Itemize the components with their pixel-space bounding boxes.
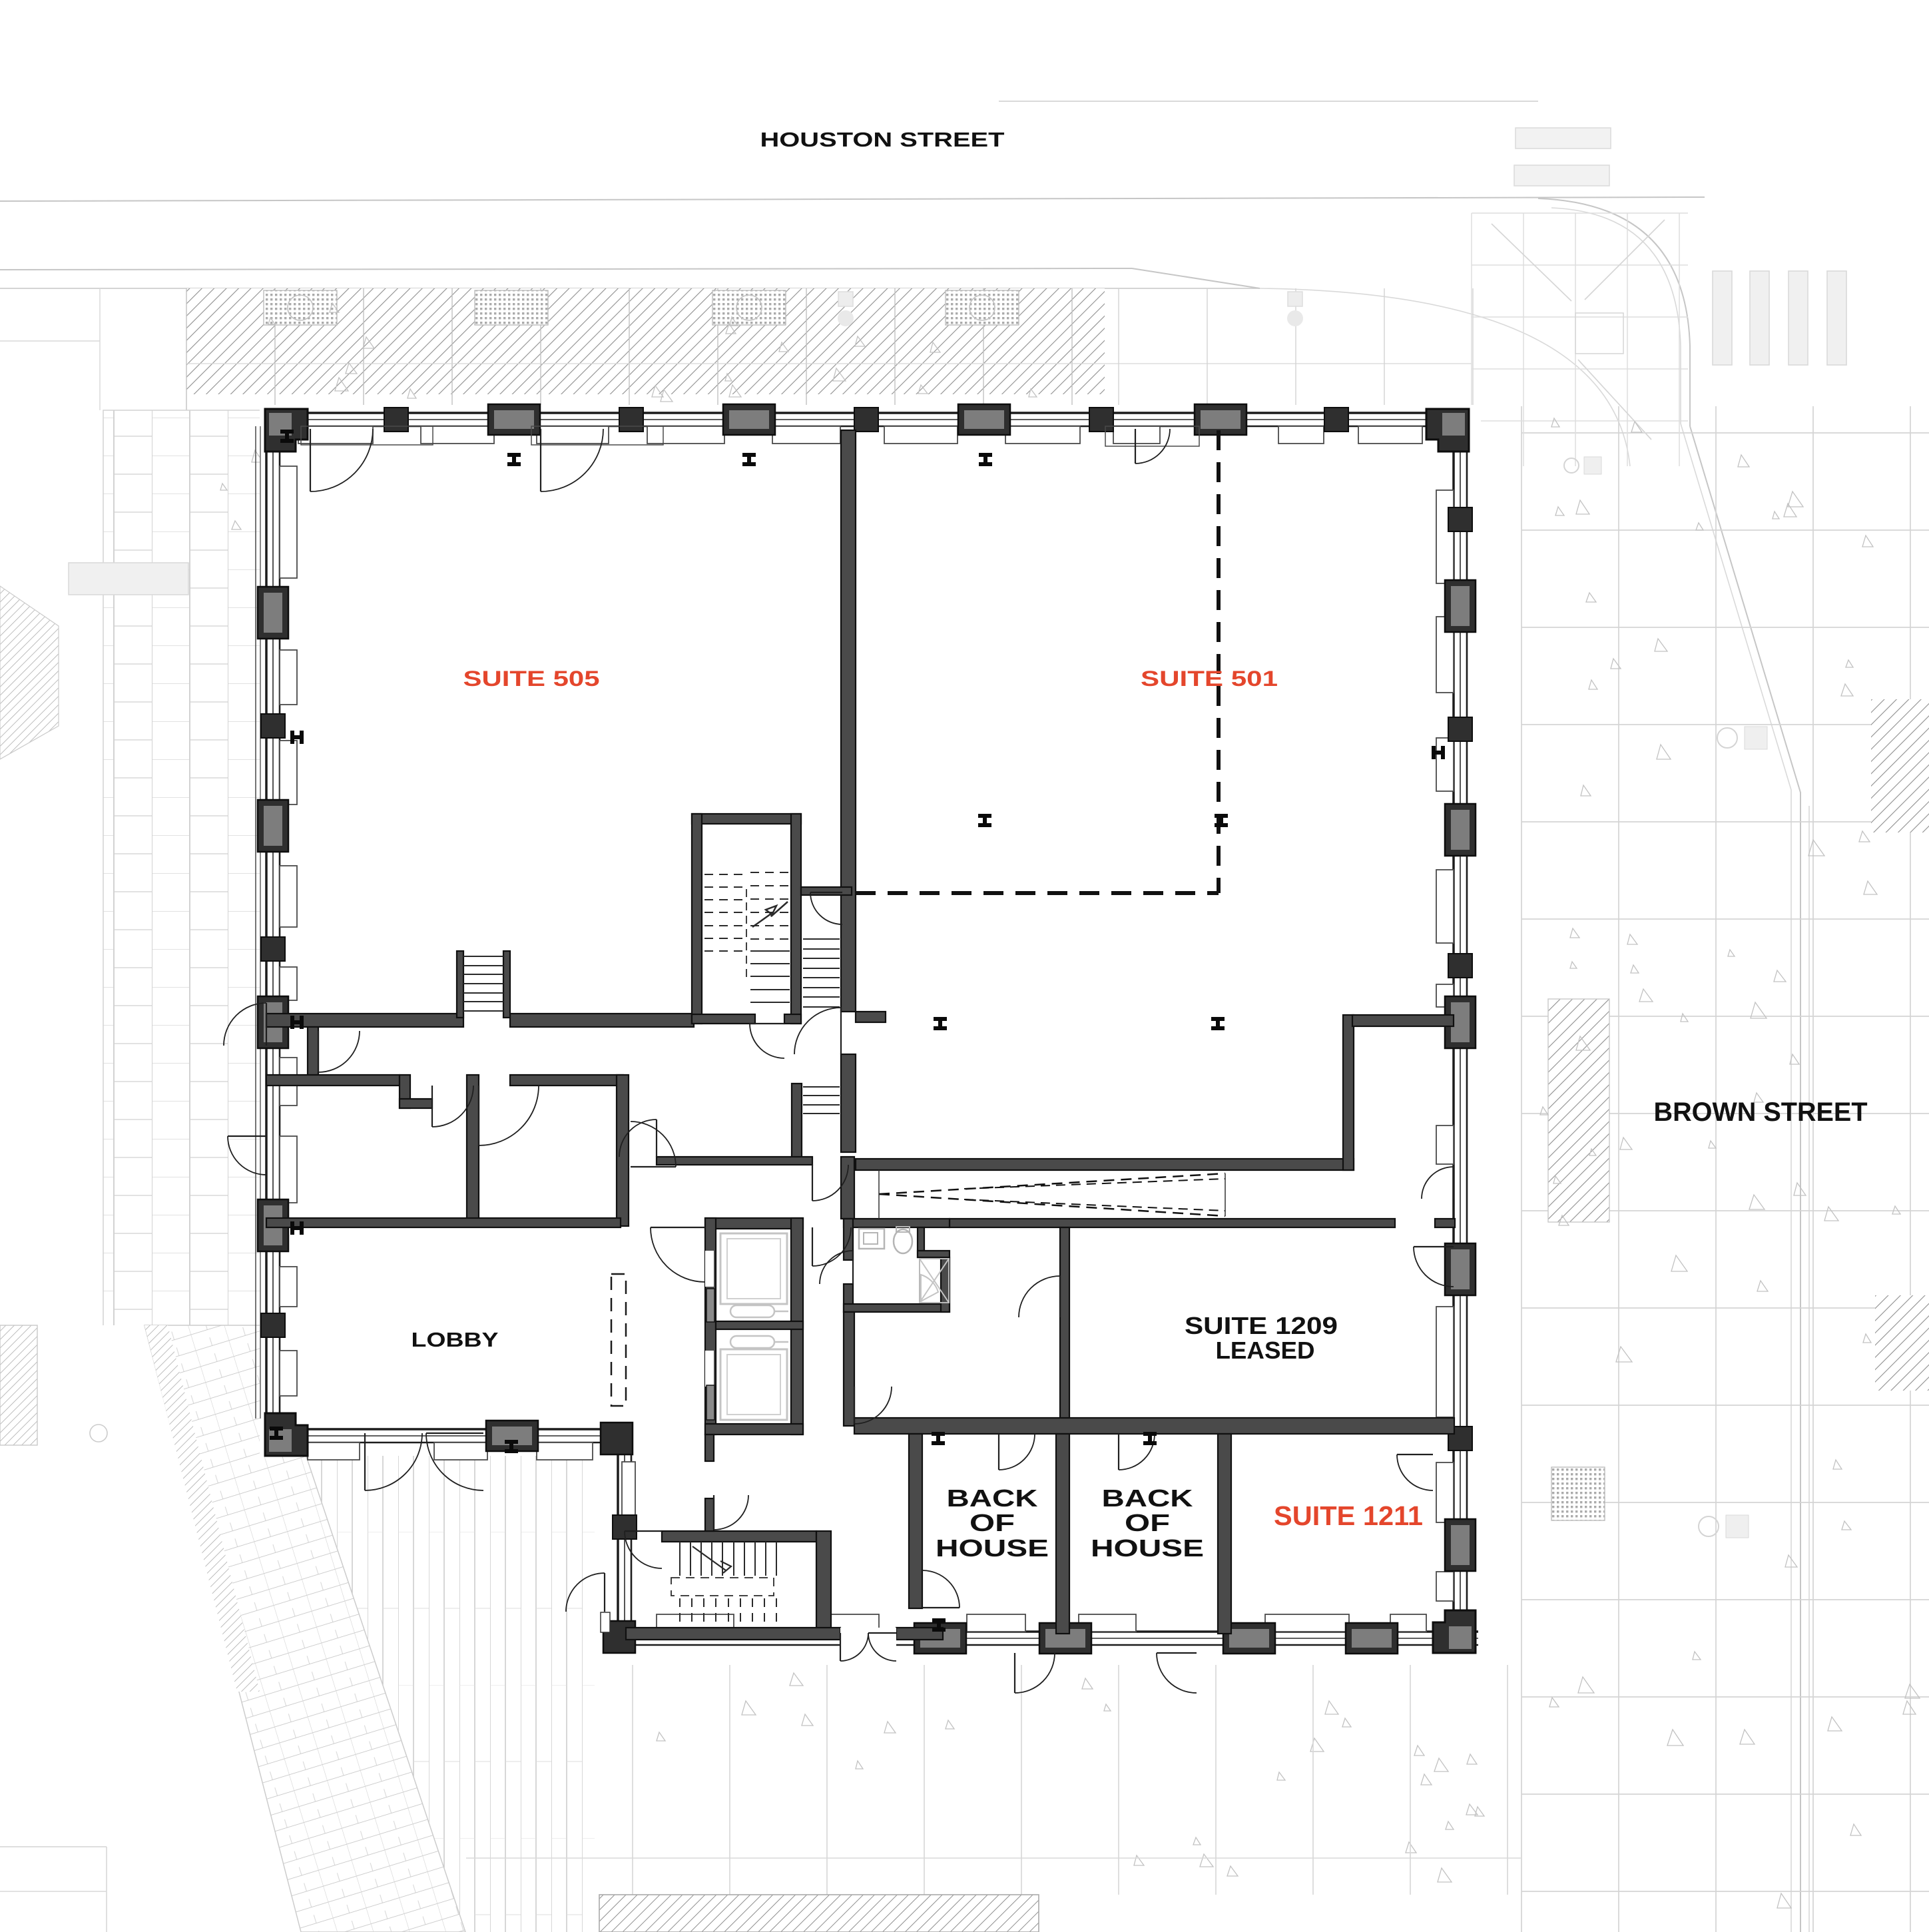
svg-text:BACK: BACK <box>947 1484 1038 1512</box>
svg-text:SUITE 505: SUITE 505 <box>463 667 600 691</box>
svg-text:LEASED: LEASED <box>1216 1337 1315 1364</box>
svg-text:OF: OF <box>969 1509 1015 1536</box>
svg-text:BROWN STREET: BROWN STREET <box>1654 1098 1868 1127</box>
svg-text:HOUSTON STREET: HOUSTON STREET <box>760 128 1005 151</box>
svg-text:HOUSE: HOUSE <box>1091 1534 1204 1562</box>
svg-text:LOBBY: LOBBY <box>412 1328 499 1351</box>
svg-text:SUITE 501: SUITE 501 <box>1141 667 1278 691</box>
svg-text:BACK: BACK <box>1102 1484 1193 1512</box>
svg-text:HOUSE: HOUSE <box>936 1534 1049 1562</box>
svg-text:SUITE 1209: SUITE 1209 <box>1185 1312 1338 1339</box>
svg-text:SUITE 1211: SUITE 1211 <box>1274 1500 1423 1531</box>
svg-text:OF: OF <box>1125 1509 1170 1536</box>
